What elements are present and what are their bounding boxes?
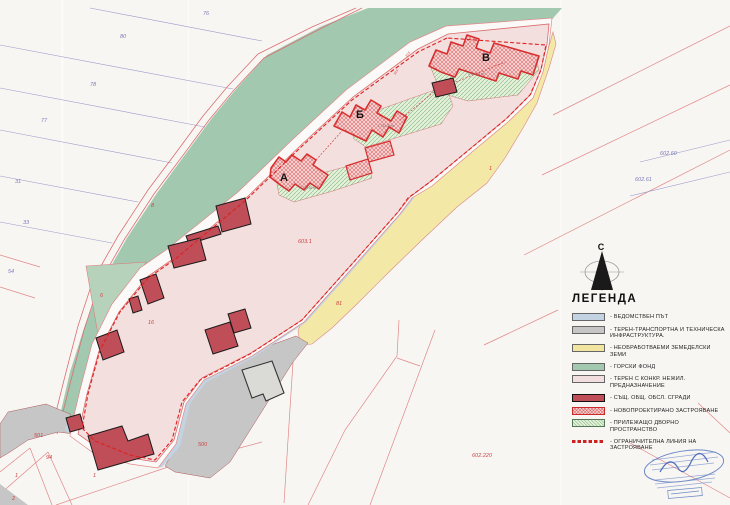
legend-swatch-new-icon — [572, 407, 605, 415]
parcel-label-31: 31 — [15, 179, 21, 185]
paper-crease — [61, 0, 64, 320]
building-label-В: В — [482, 52, 490, 64]
legend-item: - ОГРАНИЧИТЕЛНА ЛИНИЯ НА ЗАСТРОЯВАНЕ — [572, 438, 726, 452]
legend-item-label: - ГОРСКИ ФОНД — [610, 363, 655, 371]
legend-swatch-agri-icon — [572, 344, 605, 352]
parcel-label-1 738.56 м²: 1 738.56 м² — [300, 186, 317, 190]
legend-item: - ПРИЛЕЖАЩО ДВОРНО ПРОСТРАНСТВО — [572, 419, 726, 433]
legend-swatch-yard-icon — [572, 419, 605, 427]
parcel-label-602.61: 602.61 — [635, 177, 652, 183]
legend-item-label: - ПРИЛЕЖАЩО ДВОРНО ПРОСТРАНСТВО — [610, 419, 726, 433]
paper-crease — [560, 0, 562, 505]
parcel-label-501: 501 — [34, 433, 43, 439]
parcel-label-80: 80 — [120, 34, 127, 40]
legend-item: - СЪЩ. ОБЩ. ОБСЛ. СГРАДИ — [572, 394, 726, 402]
legend-swatch-road-icon — [572, 313, 605, 321]
parcel-label-2: 2 — [11, 496, 15, 502]
parcel-label-33: 33 — [23, 220, 30, 226]
legend-swatch-limit-icon — [572, 440, 605, 443]
parcel-label-603.1: 603.1 — [298, 239, 312, 245]
legend-item-label: - ТЕРЕН С КОНКР. НЕЖИЛ. ПРЕДНАЗНАЧЕНИЕ — [610, 375, 726, 389]
parcel-label-54: 54 — [8, 269, 14, 275]
site-plan-document: С 76807877313354602.60602.618616603.1811… — [0, 0, 730, 505]
legend-item: - ТЕРЕН-ТРАНСПОРТНА И ТЕХНИЧЕСКА ИНФРАСТ… — [572, 326, 726, 340]
parcel-label-76: 76 — [203, 11, 210, 17]
parcel-label-1 732.30 м²: 1 732.30 м² — [378, 124, 395, 128]
legend: ЛЕГЕНДА - ВЕДОМСТВЕН ПЪТ- ТЕРЕН-ТРАНСПОР… — [572, 293, 726, 456]
parcel-label-602.220: 602.220 — [472, 453, 493, 459]
parcel-label-602.60: 602.60 — [660, 151, 678, 157]
legend-item-label: - НОВОПРОЕКТИРАНО ЗАСТРОЯВАНЕ — [610, 407, 718, 415]
parcel-label-500: 500 — [198, 442, 208, 448]
parcel-label-94: 94 — [46, 455, 52, 461]
legend-swatch-forest-icon — [572, 363, 605, 371]
legend-item-label: - ТЕРЕН-ТРАНСПОРТНА И ТЕХНИЧЕСКА ИНФРАСТ… — [610, 326, 726, 340]
legend-item: - НОВОПРОЕКТИРАНО ЗАСТРОЯВАНЕ — [572, 407, 726, 415]
legend-item-label: - ОГРАНИЧИТЕЛНА ЛИНИЯ НА ЗАСТРОЯВАНЕ — [610, 438, 726, 452]
legend-item: - ТЕРЕН С КОНКР. НЕЖИЛ. ПРЕДНАЗНАЧЕНИЕ — [572, 375, 726, 389]
legend-swatch-terrain-icon — [572, 375, 605, 383]
legend-item-label: - ВЕДОМСТВЕН ПЪТ — [610, 313, 668, 321]
building-label-А: А — [280, 172, 288, 184]
compass-north-label: С — [598, 242, 605, 252]
parcel-label-1: 1 — [15, 473, 18, 479]
legend-item: - НЕОБРАБОТВАЕМИ ЗЕМЕДЕЛСКИ ЗЕМИ — [572, 344, 726, 358]
legend-item-label: - НЕОБРАБОТВАЕМИ ЗЕМЕДЕЛСКИ ЗЕМИ — [610, 344, 726, 358]
legend-item: - ГОРСКИ ФОНД — [572, 363, 726, 371]
parcel-label-16: 16 — [148, 320, 155, 326]
parcel-label-77: 77 — [41, 118, 48, 124]
legend-items: - ВЕДОМСТВЕН ПЪТ- ТЕРЕН-ТРАНСПОРТНА И ТЕ… — [572, 313, 726, 452]
building-label-Б: Б — [356, 109, 364, 121]
parcel-label-1: 1 — [93, 473, 96, 479]
parcel-label-78: 78 — [90, 82, 97, 88]
legend-swatch-infra-icon — [572, 326, 605, 334]
parcel-label-1 486.14 м²: 1 486.14 м² — [468, 72, 485, 76]
parcel-label-81: 81 — [336, 301, 342, 307]
legend-swatch-existing-icon — [572, 394, 605, 402]
legend-title: ЛЕГЕНДА — [572, 293, 726, 305]
parcel-label-1: 1 — [489, 166, 492, 172]
legend-item-label: - СЪЩ. ОБЩ. ОБСЛ. СГРАДИ — [610, 394, 691, 402]
legend-item: - ВЕДОМСТВЕН ПЪТ — [572, 313, 726, 321]
